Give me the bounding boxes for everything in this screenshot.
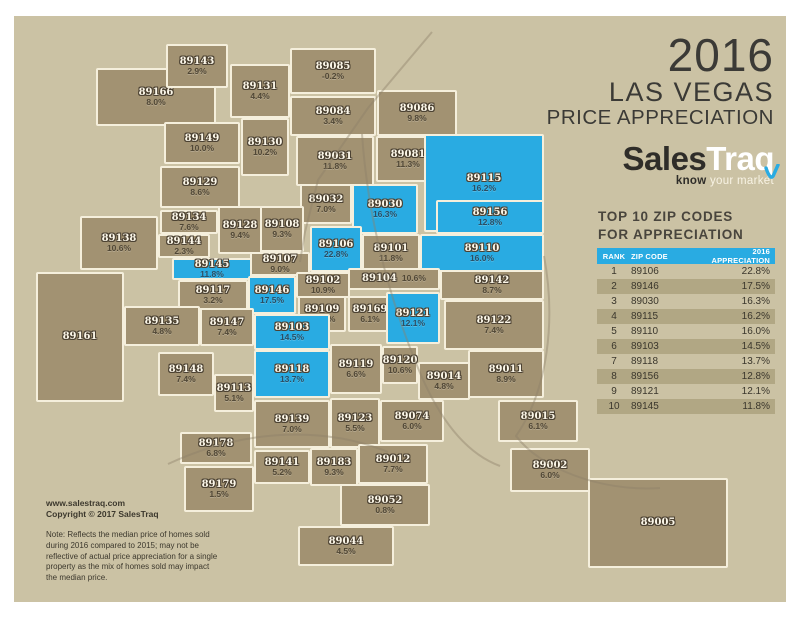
pct-label: 10.0% (190, 144, 214, 153)
map-region-89139: 891397.0% (254, 400, 330, 448)
map-region-89104: 8910410.6% (348, 268, 440, 290)
pct-label: 11.8% (200, 270, 224, 279)
map-region-89178: 891786.8% (180, 432, 252, 464)
map-region-89143: 891432.9% (166, 44, 228, 88)
pct-label: 7.0% (316, 205, 335, 214)
map-region-89156: 8915612.8% (436, 200, 544, 234)
pct-label: 3.4% (323, 117, 342, 126)
map-region-89128: 891289.4% (218, 206, 262, 254)
map-region-89015: 890156.1% (498, 400, 578, 442)
pct-label: 10.6% (388, 366, 412, 375)
table-row: 98912112.1% (597, 384, 775, 399)
map-region-89134: 891347.6% (160, 210, 218, 234)
pct-label: 11.3% (396, 160, 420, 169)
pct-label: 2.9% (187, 67, 206, 76)
pct-label: 10.2% (253, 148, 277, 157)
pct-label: 8.6% (190, 188, 209, 197)
map-region-89118: 8911813.7% (254, 350, 330, 398)
pct-label: 4.8% (434, 382, 453, 391)
table-row: 28914617.5% (597, 279, 775, 294)
cell-appreciation: 16.0% (693, 326, 775, 337)
cell-rank: 3 (597, 296, 631, 307)
cell-rank: 1 (597, 266, 631, 277)
table-row: 78911813.7% (597, 354, 775, 369)
map-region-89113: 891135.1% (214, 374, 254, 412)
pct-label: 9.3% (324, 468, 343, 477)
map-region-89120: 8912010.6% (382, 346, 418, 384)
cell-appreciation: 16.3% (693, 296, 775, 307)
map-region-89011: 890118.9% (468, 350, 544, 398)
cell-rank: 10 (597, 401, 631, 412)
cell-zip: 89110 (631, 326, 693, 337)
cell-rank: 8 (597, 371, 631, 382)
map-region-89149: 8914910.0% (164, 122, 240, 164)
cell-appreciation: 13.7% (693, 356, 775, 367)
column-header-appreciation: 2016 APPRECIATION (693, 247, 775, 265)
map-region-89161: 89161 (36, 272, 124, 402)
infographic-page: 891668.0%891432.9%891314.4%89085-0.2%890… (0, 0, 800, 618)
map-region-89146: 8914617.5% (248, 276, 296, 314)
top10-heading: TOP 10 ZIP CODES FOR APPRECIATION (598, 208, 744, 243)
cell-appreciation: 16.2% (693, 311, 775, 322)
pct-label: 13.7% (280, 375, 304, 384)
map-region-89014: 890144.8% (418, 362, 470, 400)
map-region-89102: 8910210.9% (296, 272, 350, 298)
pct-label: 10.6% (402, 274, 426, 283)
pct-label: 6.0% (402, 422, 421, 431)
website-url: www.salestraq.com (46, 498, 218, 509)
pct-label: 3.2% (203, 296, 222, 305)
pct-label: 4.5% (336, 547, 355, 556)
top10-heading-line1: TOP 10 ZIP CODES (598, 208, 744, 226)
map-region-89121: 8912112.1% (386, 292, 440, 344)
cell-appreciation: 14.5% (693, 341, 775, 352)
cell-appreciation: 22.8% (693, 266, 775, 277)
map-region-89032: 890327.0% (300, 184, 352, 224)
pct-label: 6.1% (528, 422, 547, 431)
title-city: LAS VEGAS (547, 78, 774, 106)
pct-label: 10.9% (311, 286, 335, 295)
table-row: 68910314.5% (597, 339, 775, 354)
map-region-89144: 891442.3% (158, 234, 210, 258)
map-region-89183: 891839.3% (310, 448, 358, 486)
title-year: 2016 (547, 34, 774, 78)
pct-label: 6.1% (360, 315, 379, 324)
pct-label: 9.0% (270, 265, 289, 274)
cell-rank: 9 (597, 386, 631, 397)
pct-label: -0.2% (322, 72, 344, 81)
pct-label: 4.8% (152, 327, 171, 336)
map-region-89110: 8911016.0% (420, 234, 544, 272)
pct-label: 8.9% (496, 375, 515, 384)
pct-label: 16.3% (373, 210, 397, 219)
pct-label: 5.2% (272, 468, 291, 477)
cell-rank: 2 (597, 281, 631, 292)
footer-block: www.salestraq.com Copyright © 2017 Sales… (46, 498, 218, 584)
map-region-89131: 891314.4% (230, 64, 290, 118)
pct-label: 6.6% (346, 370, 365, 379)
cell-zip: 89146 (631, 281, 693, 292)
pct-label: 7.4% (217, 328, 236, 337)
pct-label: 11.8% (379, 254, 403, 263)
map-region-89101: 8910111.8% (362, 234, 420, 272)
pct-label: 0.8% (375, 506, 394, 515)
pct-label: 6.8% (206, 449, 225, 458)
pct-label: 16.0% (470, 254, 494, 263)
pct-label: 6.0% (540, 471, 559, 480)
pct-label: 5.1% (224, 394, 243, 403)
table-row: 48911516.2% (597, 309, 775, 324)
copyright-text: Copyright © 2017 SalesTraq (46, 509, 218, 520)
map-region-89002: 890026.0% (510, 448, 590, 492)
map-region-89103: 8910314.5% (254, 314, 330, 350)
map-region-89119: 891196.6% (330, 344, 382, 394)
map-region-89084: 890843.4% (290, 96, 376, 136)
cell-zip: 89106 (631, 266, 693, 277)
map-region-89074: 890746.0% (380, 400, 444, 442)
pct-label: 5.5% (345, 424, 364, 433)
pct-label: 17.5% (260, 296, 284, 305)
map-region-89106: 8910622.8% (310, 226, 362, 272)
map-region-89142: 891428.7% (440, 270, 544, 300)
disclaimer-note: Note: Reflects the median price of homes… (46, 530, 218, 584)
zip-label: 89005 (641, 517, 676, 529)
pct-label: 16.2% (472, 184, 496, 193)
top10-table: RANK ZIP CODE 2016 APPRECIATION 18910622… (597, 248, 775, 414)
pct-label: 7.6% (179, 223, 198, 232)
zip-label: 89104 (362, 273, 397, 285)
pct-label: 8.7% (482, 286, 501, 295)
map-region-89108: 891089.3% (260, 206, 304, 252)
pct-label: 12.1% (401, 319, 425, 328)
top10-heading-line2: FOR APPRECIATION (598, 226, 744, 244)
salestraq-logo: SalesTraq know your market (623, 142, 774, 187)
table-row: 88915612.8% (597, 369, 775, 384)
cell-rank: 6 (597, 341, 631, 352)
logo-wordmark: SalesTraq (623, 142, 774, 175)
pct-label: 7.4% (484, 326, 503, 335)
table-header-row: RANK ZIP CODE 2016 APPRECIATION (597, 248, 775, 264)
map-region-89052: 890520.8% (340, 484, 430, 526)
pct-label: 9.4% (230, 231, 249, 240)
pct-label: 2.3% (174, 247, 193, 256)
pct-label: 7.4% (176, 375, 195, 384)
map-region-89005: 89005 (588, 478, 728, 568)
map-region-89147: 891477.4% (200, 308, 254, 346)
cell-appreciation: 12.1% (693, 386, 775, 397)
map-region-89123: 891235.5% (330, 398, 380, 448)
column-header-rank: RANK (597, 252, 631, 261)
title-subject: PRICE APPRECIATION (547, 106, 774, 130)
table-row: 18910622.8% (597, 264, 775, 279)
cell-zip: 89145 (631, 401, 693, 412)
pct-label: 7.0% (282, 425, 301, 434)
title-block: 2016 LAS VEGAS PRICE APPRECIATION (547, 34, 774, 130)
pct-label: 14.5% (280, 333, 304, 342)
map-region-89138: 8913810.6% (80, 216, 158, 270)
map-region-89012: 890127.7% (358, 444, 428, 484)
map-region-89141: 891415.2% (254, 450, 310, 484)
cell-zip: 89115 (631, 311, 693, 322)
cell-rank: 5 (597, 326, 631, 337)
map-region-89044: 890444.5% (298, 526, 394, 566)
pct-label: 22.8% (324, 250, 348, 259)
column-header-zip: ZIP CODE (631, 252, 693, 261)
table-row: 58911016.0% (597, 324, 775, 339)
pct-label: 7.7% (383, 465, 402, 474)
cell-rank: 4 (597, 311, 631, 322)
pct-label: 9.3% (272, 230, 291, 239)
cell-zip: 89030 (631, 296, 693, 307)
map-region-89130: 8913010.2% (241, 118, 289, 176)
cell-appreciation: 17.5% (693, 281, 775, 292)
map-region-89122: 891227.4% (444, 300, 544, 350)
cell-zip: 89156 (631, 371, 693, 382)
map-region-89031: 8903111.8% (296, 136, 374, 186)
pct-label: 11.8% (323, 162, 347, 171)
table-row: 38903016.3% (597, 294, 775, 309)
cell-zip: 89103 (631, 341, 693, 352)
cell-appreciation: 11.8% (693, 401, 775, 412)
map-region-89129: 891298.6% (160, 166, 240, 208)
map-region-89085: 89085-0.2% (290, 48, 376, 94)
cell-zip: 89118 (631, 356, 693, 367)
logo-swoosh-icon (764, 164, 780, 182)
table-row: 108914511.8% (597, 399, 775, 414)
pct-label: 8.0% (146, 98, 165, 107)
cell-appreciation: 12.8% (693, 371, 775, 382)
map-region-89086: 890869.8% (377, 90, 457, 136)
pct-label: 9.8% (407, 114, 426, 123)
cell-rank: 7 (597, 356, 631, 367)
pct-label: 12.8% (478, 218, 502, 227)
pct-label: 10.6% (107, 244, 131, 253)
logo-sales-text: Sales (623, 140, 707, 177)
pct-label: 4.4% (250, 92, 269, 101)
zip-label: 89161 (63, 331, 98, 343)
map-region-89135: 891354.8% (124, 306, 200, 346)
map-region-89148: 891487.4% (158, 352, 214, 396)
top10-table-body: 18910622.8%28914617.5%38903016.3%4891151… (597, 264, 775, 414)
map-region-89145: 8914511.8% (172, 258, 252, 280)
cell-zip: 89121 (631, 386, 693, 397)
